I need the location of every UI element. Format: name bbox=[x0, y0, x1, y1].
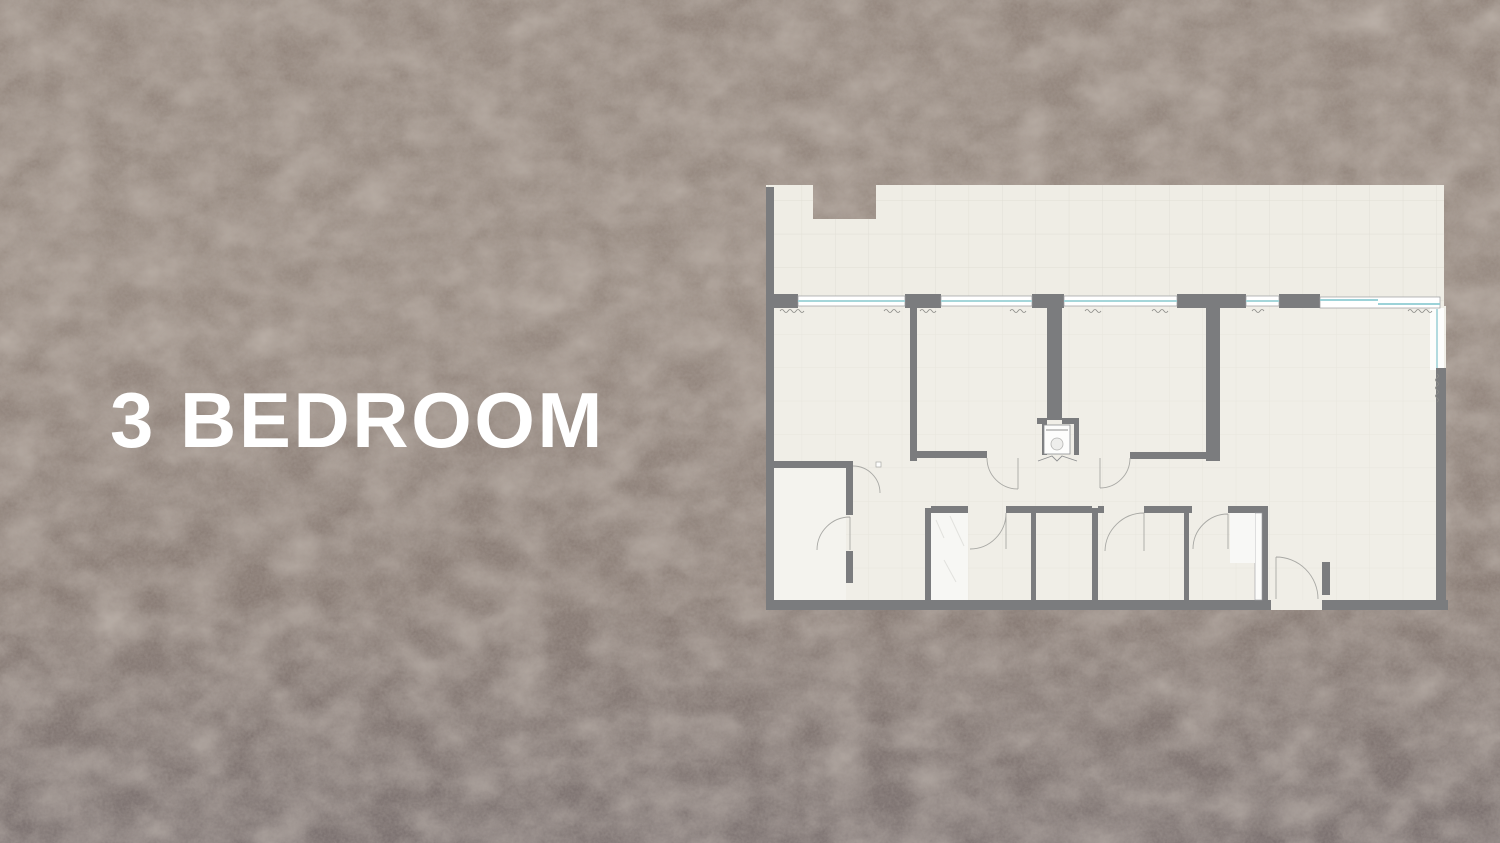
svg-text:3 BEDROOM: 3 BEDROOM bbox=[110, 376, 605, 464]
